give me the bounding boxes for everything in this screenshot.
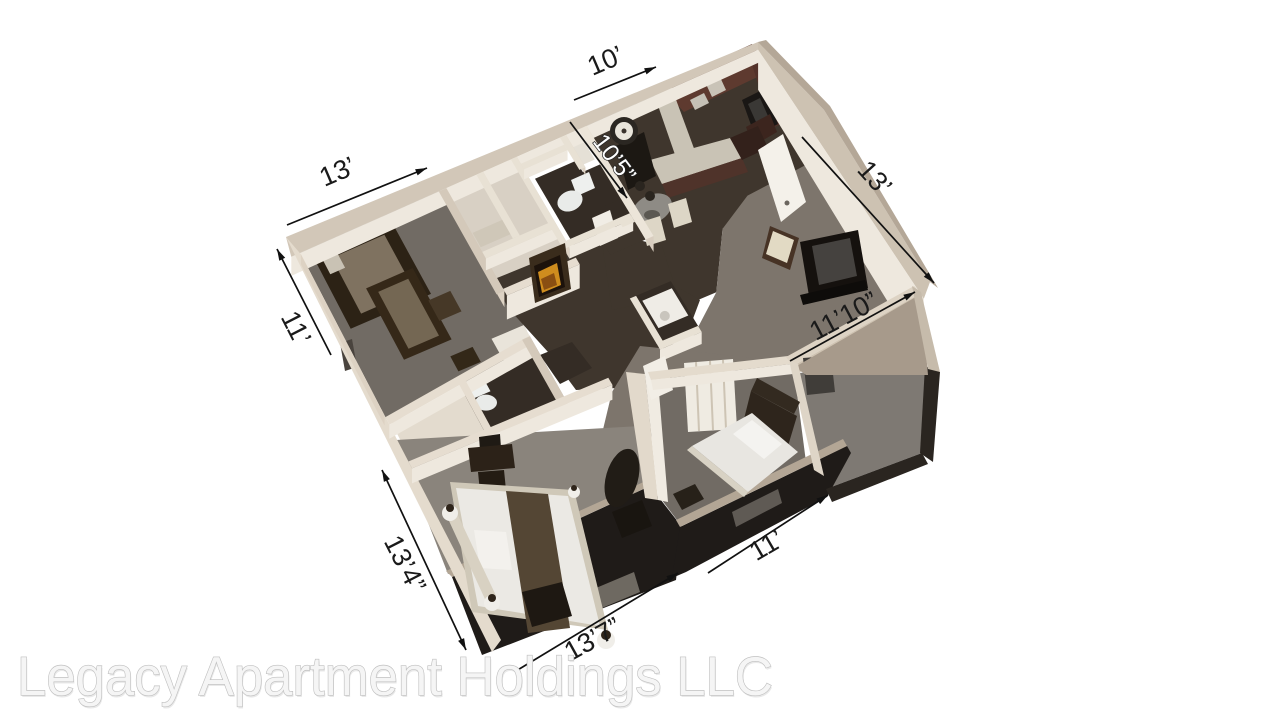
- svg-text:Legacy Apartment Holdings LLC: Legacy Apartment Holdings LLC: [17, 645, 773, 707]
